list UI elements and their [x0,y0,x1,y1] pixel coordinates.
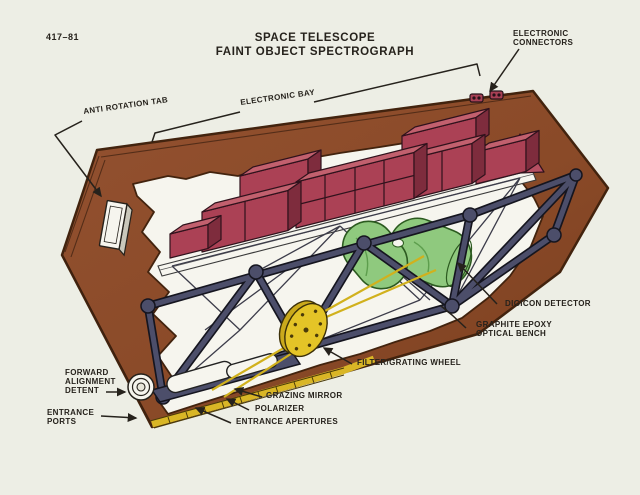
figure-space-telescope-faint-object-spectrograph: 417–81 SPACE TELESCOPE FAINT OBJECT SPEC… [0,0,640,495]
leader-electronic-bay-right [314,64,480,102]
label-forward-alignment-detent: FORWARD ALIGNMENT DETENT [65,368,116,396]
figure-number: 417–81 [46,32,79,42]
label-electronic-connectors: ELECTRONIC CONNECTORS [513,29,573,47]
label-digicon-detector: DIGICON DETECTOR [505,299,591,308]
label-entrance-ports: ENTRANCE PORTS [47,408,94,426]
leader-electronic-connectors [490,49,519,91]
label-entrance-apertures: ENTRANCE APERTURES [236,417,338,426]
title-line-1: SPACE TELESCOPE [170,31,460,45]
label-polarizer: POLARIZER [255,404,304,413]
label-graphite-epoxy-optical-bench: GRAPHITE EPOXY OPTICAL BENCH [476,320,552,338]
forward-alignment-detent [128,374,154,400]
diagram-title: SPACE TELESCOPE FAINT OBJECT SPECTROGRAP… [170,31,460,59]
title-line-2: FAINT OBJECT SPECTROGRAPH [170,45,460,59]
leader-entrance-ports [101,416,136,418]
label-grazing-mirror: GRAZING MIRROR [266,391,342,400]
label-filter-grating-wheel: FILTER/GRATING WHEEL [357,358,461,367]
